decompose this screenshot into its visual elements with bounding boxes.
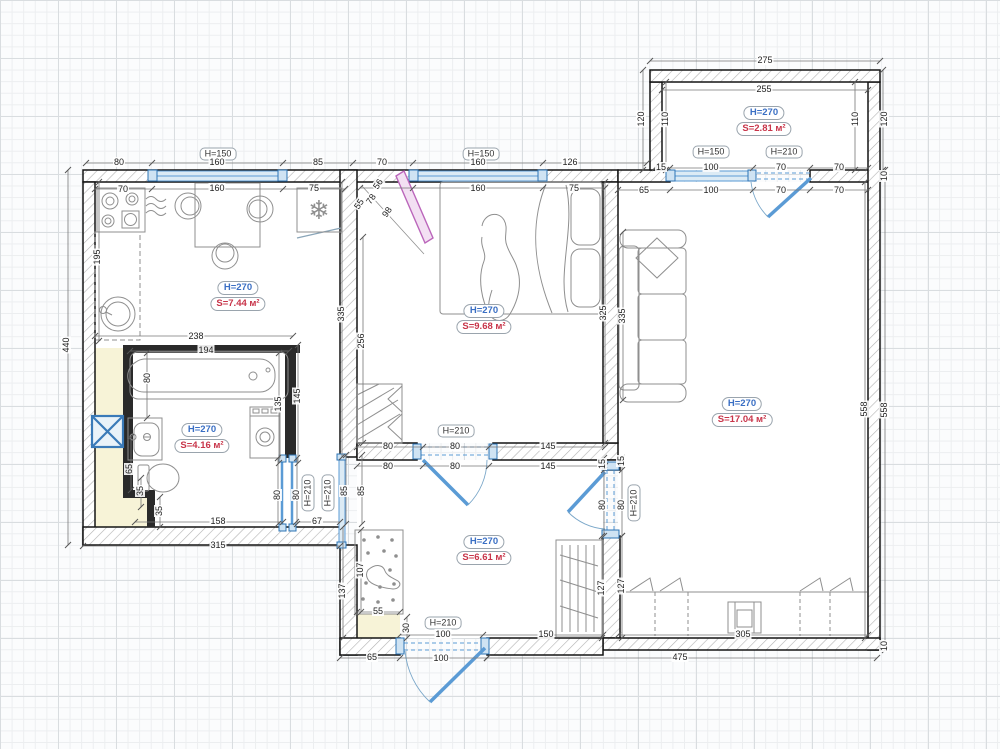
bedroom-window[interactable] bbox=[409, 170, 547, 181]
floor-plan: ❄ bbox=[0, 0, 1000, 749]
balcony-window[interactable] bbox=[666, 170, 753, 181]
vent-shaft[interactable] bbox=[92, 416, 123, 447]
room-interiors bbox=[95, 82, 868, 638]
entry-door[interactable] bbox=[396, 638, 489, 702]
snowflake-icon: ❄ bbox=[308, 196, 330, 226]
kitchen-window[interactable] bbox=[148, 170, 287, 181]
floor-plan-canvas: ❄ bbox=[0, 0, 1000, 749]
